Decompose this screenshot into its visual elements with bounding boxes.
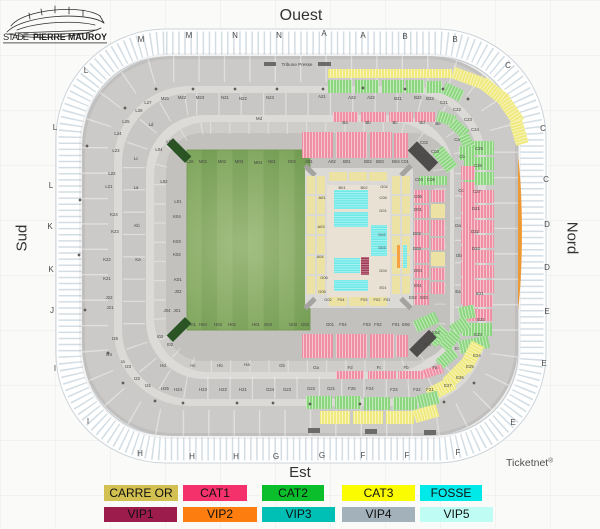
ring-letter: C bbox=[505, 61, 511, 70]
section-label: Ea bbox=[455, 289, 461, 294]
section-label: J04 bbox=[164, 308, 172, 313]
section-label: F02 bbox=[374, 297, 382, 302]
logo-underline bbox=[3, 43, 107, 44]
section-label: D02 bbox=[413, 231, 421, 236]
section-label: G06 bbox=[320, 275, 328, 280]
section-label: L02 bbox=[160, 179, 168, 184]
ring-letter: G bbox=[273, 452, 279, 461]
section-label: M01 bbox=[199, 159, 208, 164]
section-label: N22 bbox=[239, 96, 247, 101]
section-label: G04 bbox=[264, 322, 273, 327]
seat-section-cat2[interactable] bbox=[355, 80, 379, 93]
section-label: F01 bbox=[392, 322, 400, 327]
section-label: H03 bbox=[214, 322, 222, 327]
section-label: A23 bbox=[367, 95, 375, 100]
seat-section-cat2[interactable] bbox=[364, 397, 390, 410]
section-label: M23 bbox=[196, 95, 205, 100]
section-label: E06 bbox=[402, 322, 410, 327]
section-label: B01 bbox=[338, 185, 346, 190]
section-label: L22 bbox=[108, 171, 116, 176]
section-label: D01 bbox=[414, 207, 422, 212]
section-label: E21 bbox=[476, 291, 484, 296]
floor-seat-block[interactable] bbox=[307, 236, 315, 254]
fosse-block[interactable] bbox=[334, 258, 360, 273]
entrance-bar bbox=[308, 428, 320, 433]
section-label: H23 bbox=[199, 387, 207, 392]
seat-section-cat1[interactable] bbox=[336, 371, 364, 379]
fosse-block[interactable] bbox=[334, 280, 368, 291]
section-label: K01 bbox=[174, 277, 182, 282]
floor-seat-block[interactable] bbox=[431, 252, 445, 266]
section-label: Db bbox=[456, 253, 462, 258]
legend-label: VIP1 bbox=[127, 507, 153, 521]
stadium-seating-map: Tribune PresseM21M22M23N21N22N23A21A22A2… bbox=[0, 0, 600, 529]
section-label: E26 bbox=[456, 375, 464, 380]
section-label: K24 bbox=[110, 212, 118, 217]
section-label: F01 bbox=[384, 297, 392, 302]
section-label: C05 bbox=[427, 177, 435, 182]
section-label: D02 bbox=[378, 232, 386, 237]
section-label: A01 bbox=[305, 159, 313, 164]
section-label: Fd bbox=[347, 365, 353, 370]
legend-label: CAT2 bbox=[278, 486, 308, 500]
seat-section-cat1[interactable] bbox=[370, 132, 392, 158]
ring-letter: B bbox=[452, 35, 457, 44]
section-label: Cb bbox=[459, 154, 465, 159]
ring-letter: N bbox=[276, 31, 282, 40]
seat-section-cat1[interactable] bbox=[370, 334, 394, 358]
seat-section-cat1[interactable] bbox=[415, 112, 435, 122]
section-label: H25 bbox=[161, 386, 169, 391]
section-label: G04 bbox=[380, 184, 388, 189]
section-label: H22 bbox=[219, 387, 227, 392]
section-label: D22 bbox=[471, 229, 479, 234]
seat-section-cat1[interactable] bbox=[461, 262, 475, 276]
section-label: I01 bbox=[190, 322, 197, 327]
floor-seat-block[interactable] bbox=[392, 176, 400, 194]
section-label: La bbox=[134, 185, 139, 190]
ring-letter: N bbox=[232, 31, 238, 40]
section-label: N01 bbox=[268, 159, 276, 164]
floor-seat-block[interactable] bbox=[431, 204, 445, 218]
seat-section-cat3[interactable] bbox=[328, 69, 452, 78]
section-label: K21 bbox=[103, 276, 111, 281]
section-label: Fb bbox=[403, 365, 409, 370]
ring-letter: F bbox=[405, 451, 410, 460]
section-label: C22 bbox=[453, 107, 461, 112]
section-label: Ba bbox=[342, 120, 348, 125]
legend-label: CARRE OR bbox=[109, 486, 173, 500]
ring-letter: H bbox=[137, 449, 143, 458]
ring-letter: F bbox=[456, 448, 461, 457]
section-label: J02 bbox=[175, 289, 183, 294]
section-label: F03 bbox=[363, 322, 371, 327]
pitch-light-overlay bbox=[187, 150, 310, 330]
section-label: A22 bbox=[348, 95, 356, 100]
seat-section-cat1[interactable] bbox=[336, 334, 367, 358]
section-label: K23 bbox=[111, 229, 119, 234]
seat-section-cat1[interactable] bbox=[431, 268, 445, 280]
watermark-reg: ® bbox=[548, 457, 553, 465]
section-label: I23 bbox=[125, 364, 132, 369]
seat-section-cat1[interactable] bbox=[461, 166, 475, 180]
floor-seat-block[interactable] bbox=[369, 172, 387, 181]
section-label: H04 bbox=[199, 322, 207, 327]
fosse-block[interactable] bbox=[334, 212, 368, 227]
floor-seat-block[interactable] bbox=[392, 216, 400, 234]
seat-section-cat1[interactable] bbox=[461, 278, 475, 291]
section-label: Hc bbox=[190, 363, 196, 368]
floor-seat-block[interactable] bbox=[307, 256, 315, 274]
section-label: K03 bbox=[173, 239, 181, 244]
section-label: F25 bbox=[348, 386, 356, 391]
ring-letter: G bbox=[319, 451, 325, 460]
section-label: E27 bbox=[444, 383, 452, 388]
section-label: Ha bbox=[244, 362, 250, 367]
seat-section-cat2[interactable] bbox=[393, 397, 417, 410]
fosse-block[interactable] bbox=[334, 190, 368, 209]
section-label: Ka bbox=[135, 257, 141, 262]
section-label: K02 bbox=[173, 252, 181, 257]
ring-letter: E bbox=[541, 359, 546, 368]
section-label: G01 bbox=[326, 322, 335, 327]
section-label: A03 bbox=[317, 224, 325, 229]
section-label: B23 bbox=[426, 96, 434, 101]
section-label: L23 bbox=[112, 148, 120, 153]
section-label: C27 bbox=[473, 189, 481, 194]
section-label: D01 bbox=[379, 208, 387, 213]
seat-section-cat1[interactable] bbox=[431, 220, 445, 236]
section-label: A04 bbox=[316, 254, 324, 259]
section-label: B21 bbox=[394, 96, 402, 101]
section-label: L01 bbox=[174, 199, 182, 204]
seat-section-cat2[interactable] bbox=[328, 80, 352, 93]
ring-letter: C bbox=[540, 124, 546, 133]
vip1-block[interactable] bbox=[361, 257, 369, 275]
section-label: A02 bbox=[328, 159, 336, 164]
section-label: Gb bbox=[279, 363, 285, 368]
section-label: M02 bbox=[218, 159, 227, 164]
seat-section-cat1[interactable] bbox=[336, 132, 367, 158]
section-label: B03 bbox=[376, 159, 384, 164]
section-label: E23 bbox=[474, 332, 482, 337]
ring-letter: I bbox=[54, 364, 56, 373]
seat-section-cat1[interactable] bbox=[302, 132, 333, 158]
ring-letter: A bbox=[321, 29, 327, 38]
section-label: J01 bbox=[174, 308, 182, 313]
seat-section-cat1[interactable] bbox=[431, 238, 445, 250]
seat-section-cat3[interactable] bbox=[353, 411, 383, 424]
section-label: M04 bbox=[254, 160, 263, 165]
section-label: A21 bbox=[318, 94, 326, 99]
section-label: J21 bbox=[107, 305, 115, 310]
section-label: I03 bbox=[157, 334, 164, 339]
section-label: L27 bbox=[144, 100, 152, 105]
seat-section-cat2[interactable] bbox=[426, 81, 442, 93]
section-label: Kb bbox=[134, 223, 140, 228]
section-label: C03 bbox=[431, 149, 439, 154]
section-label: L04 bbox=[155, 147, 163, 152]
section-label: J22 bbox=[106, 295, 114, 300]
section-label: F24 bbox=[366, 386, 374, 391]
section-label: E04 bbox=[432, 330, 440, 335]
ring-letter: F bbox=[361, 451, 366, 460]
entrance-bar bbox=[365, 429, 377, 434]
fosse-block[interactable] bbox=[403, 245, 407, 268]
section-label: H01 bbox=[252, 322, 260, 327]
ring-letter: C bbox=[543, 175, 549, 184]
section-label: F02 bbox=[374, 322, 382, 327]
section-label: Bc bbox=[392, 120, 398, 125]
section-label: C23 bbox=[464, 117, 472, 122]
section-label: B02 bbox=[360, 185, 368, 190]
seat-section-cat1[interactable] bbox=[368, 371, 396, 379]
ring-letter: A bbox=[360, 31, 366, 40]
logo-text-light: STADE bbox=[3, 32, 29, 42]
section-label: Tribune Presse bbox=[282, 62, 313, 67]
section-label: I22 bbox=[134, 376, 141, 381]
entrance-bar bbox=[318, 62, 331, 66]
section-label: D04 bbox=[379, 268, 387, 273]
section-label: E05 bbox=[423, 342, 431, 347]
ring-letter: L bbox=[84, 66, 89, 75]
floor-seat-block[interactable] bbox=[402, 176, 410, 194]
section-label: Hb bbox=[217, 363, 223, 368]
section-label: L03 bbox=[166, 139, 174, 144]
ring-letter: J bbox=[50, 306, 54, 315]
floor-seat-block[interactable] bbox=[392, 276, 400, 294]
section-label: L26 bbox=[135, 108, 143, 113]
entrance-bar bbox=[264, 62, 276, 66]
section-label: L26 bbox=[186, 159, 194, 164]
seat-section-cat1[interactable] bbox=[394, 133, 408, 158]
floor-seat-block[interactable] bbox=[402, 276, 410, 294]
ring-letter: E bbox=[544, 307, 549, 316]
section-label: Fa bbox=[432, 365, 438, 370]
watermark: Ticketnet® bbox=[506, 457, 553, 470]
section-label: F04 bbox=[338, 297, 346, 302]
section-label: G21 bbox=[327, 386, 336, 391]
section-label: L21 bbox=[105, 184, 113, 189]
ring-letter: B bbox=[402, 32, 407, 41]
section-label: G02 bbox=[324, 297, 332, 302]
section-label: D04 bbox=[414, 268, 422, 273]
floor-seat-block[interactable] bbox=[317, 236, 325, 254]
section-label: Da bbox=[455, 223, 461, 228]
section-label: Bb bbox=[365, 120, 371, 125]
section-label: G03 bbox=[289, 322, 298, 327]
ring-letter: M bbox=[186, 31, 193, 40]
section-label: I21 bbox=[145, 383, 152, 388]
section-label: Ca bbox=[454, 137, 460, 142]
section-label: C21 bbox=[440, 100, 448, 105]
orientation-label-ouest: Ouest bbox=[280, 7, 323, 24]
section-label: M21 bbox=[161, 96, 170, 101]
section-label: E25 bbox=[466, 364, 474, 369]
section-label: F22 bbox=[413, 387, 421, 392]
section-label: C26 bbox=[474, 163, 482, 168]
ring-letter: H bbox=[189, 452, 195, 461]
seat-section-cat1[interactable] bbox=[431, 282, 445, 294]
ring-letter: K bbox=[48, 265, 54, 274]
section-label: C06 bbox=[414, 194, 422, 199]
section-label: E01 bbox=[414, 283, 422, 288]
floor-seat-block[interactable] bbox=[307, 176, 315, 194]
seat-section-cat1[interactable] bbox=[414, 250, 429, 263]
section-label: Ec bbox=[454, 346, 460, 351]
section-label: D23 bbox=[472, 246, 480, 251]
section-label: Be bbox=[435, 121, 441, 126]
seat-section-cat1[interactable] bbox=[396, 335, 408, 357]
legend-label: VIP3 bbox=[285, 507, 311, 521]
logo-text-bold: PIERRE MAUROY bbox=[33, 32, 108, 42]
section-label: G02 bbox=[301, 322, 310, 327]
ring-letter: L bbox=[49, 181, 54, 190]
orientation-label-sud: Sud bbox=[14, 225, 31, 252]
floor-seat-block[interactable] bbox=[349, 172, 367, 181]
seat-section-cat3[interactable] bbox=[320, 411, 350, 424]
section-label: B04 bbox=[392, 159, 400, 164]
seat-section-cat2[interactable] bbox=[335, 396, 361, 409]
section-label: F04 bbox=[339, 322, 347, 327]
ring-letter: K bbox=[47, 222, 53, 231]
section-label: D03 bbox=[413, 246, 421, 251]
section-label: Ld bbox=[149, 122, 154, 127]
ring-letter: H bbox=[233, 452, 239, 461]
section-label: N02 bbox=[288, 159, 296, 164]
section-label: H02 bbox=[228, 322, 236, 327]
section-label: A01 bbox=[318, 195, 326, 200]
ring-letter: I bbox=[87, 417, 89, 426]
section-label: G22 bbox=[307, 386, 316, 391]
seat-section-cat1[interactable] bbox=[461, 214, 475, 228]
seat-section-cat2[interactable] bbox=[406, 80, 424, 93]
section-label: F03 bbox=[361, 297, 369, 302]
entrance-bar bbox=[424, 430, 436, 435]
section-label: B02 bbox=[364, 159, 372, 164]
section-label: E24 bbox=[473, 353, 481, 358]
section-label: K04 bbox=[173, 214, 181, 219]
section-label: G23 bbox=[283, 387, 292, 392]
section-label: K22 bbox=[103, 257, 111, 262]
watermark-text: Ticketnet bbox=[506, 457, 548, 469]
seat-section-cat1[interactable] bbox=[398, 371, 424, 379]
section-label: Bd bbox=[419, 120, 425, 125]
section-label: C01 bbox=[401, 159, 409, 164]
section-label: H24 bbox=[174, 387, 182, 392]
legend-label: CAT3 bbox=[364, 486, 394, 500]
section-label: M03 bbox=[235, 159, 244, 164]
floor-seat-block[interactable] bbox=[307, 196, 315, 214]
section-label: Md bbox=[256, 116, 263, 121]
orientation-label-est: Est bbox=[289, 464, 312, 481]
legend-label: VIP2 bbox=[207, 507, 233, 521]
ring-letter: D bbox=[544, 220, 550, 229]
aisle-strip-orange bbox=[397, 245, 400, 268]
section-label: M22 bbox=[178, 95, 187, 100]
section-label: N23 bbox=[266, 95, 274, 100]
section-label: Hd bbox=[160, 363, 166, 368]
section-label: E22 bbox=[477, 317, 485, 322]
seat-section-cat1[interactable] bbox=[431, 190, 445, 202]
section-label: E03 bbox=[420, 295, 428, 300]
section-label: Ga bbox=[313, 365, 319, 370]
section-label: D03 bbox=[378, 245, 386, 250]
section-label: Fc bbox=[377, 365, 383, 370]
section-label: L24 bbox=[114, 131, 122, 136]
floor-seat-block[interactable] bbox=[307, 216, 315, 234]
football-pitch bbox=[187, 150, 310, 330]
seat-section-cat1[interactable] bbox=[302, 334, 333, 358]
orientation-label-nord: Nord bbox=[564, 222, 581, 255]
legend-label: VIP4 bbox=[365, 507, 391, 521]
section-label: Ia bbox=[121, 359, 125, 364]
section-label: C06 bbox=[379, 195, 387, 200]
legend-label: FOSSE bbox=[431, 486, 472, 500]
section-label: G05 bbox=[318, 289, 326, 294]
floor-seat-block[interactable] bbox=[307, 276, 315, 294]
section-label: L25 bbox=[122, 119, 130, 124]
section-label: B01 bbox=[343, 159, 351, 164]
section-label: C02 bbox=[420, 140, 428, 145]
section-label: Cc bbox=[458, 188, 464, 193]
legend-label: VIP5 bbox=[443, 507, 469, 521]
legend-label: CAT1 bbox=[200, 486, 230, 500]
ring-letter: E bbox=[510, 418, 515, 427]
section-label: B22 bbox=[414, 95, 422, 100]
fosse-block[interactable] bbox=[371, 225, 387, 256]
section-label: G24 bbox=[266, 387, 275, 392]
ring-letter: M bbox=[138, 35, 145, 44]
floor-seat-block[interactable] bbox=[402, 216, 410, 234]
section-label: H21 bbox=[239, 387, 247, 392]
section-label: F23 bbox=[390, 387, 398, 392]
section-label: E01 bbox=[379, 285, 387, 290]
seat-section-cat3[interactable] bbox=[386, 411, 414, 424]
ring-letter: D bbox=[544, 263, 550, 272]
section-label: N21 bbox=[221, 95, 229, 100]
seat-section-cat1[interactable] bbox=[461, 292, 475, 304]
floor-seat-block[interactable] bbox=[317, 176, 325, 194]
seat-section-cat2[interactable] bbox=[382, 80, 404, 93]
floor-seat-block[interactable] bbox=[402, 196, 410, 214]
section-label: F21 bbox=[426, 387, 434, 392]
section-label: C04 bbox=[415, 177, 423, 182]
section-label: I02 bbox=[167, 342, 174, 347]
floor-seat-block[interactable] bbox=[329, 172, 347, 181]
section-label: I25 bbox=[112, 336, 119, 341]
ring-letter: L bbox=[53, 123, 58, 132]
floor-seat-block[interactable] bbox=[392, 196, 400, 214]
section-label: C25 bbox=[475, 146, 483, 151]
section-label: D21 bbox=[472, 206, 480, 211]
section-label: E02 bbox=[409, 295, 417, 300]
section-label: C24 bbox=[471, 127, 479, 132]
